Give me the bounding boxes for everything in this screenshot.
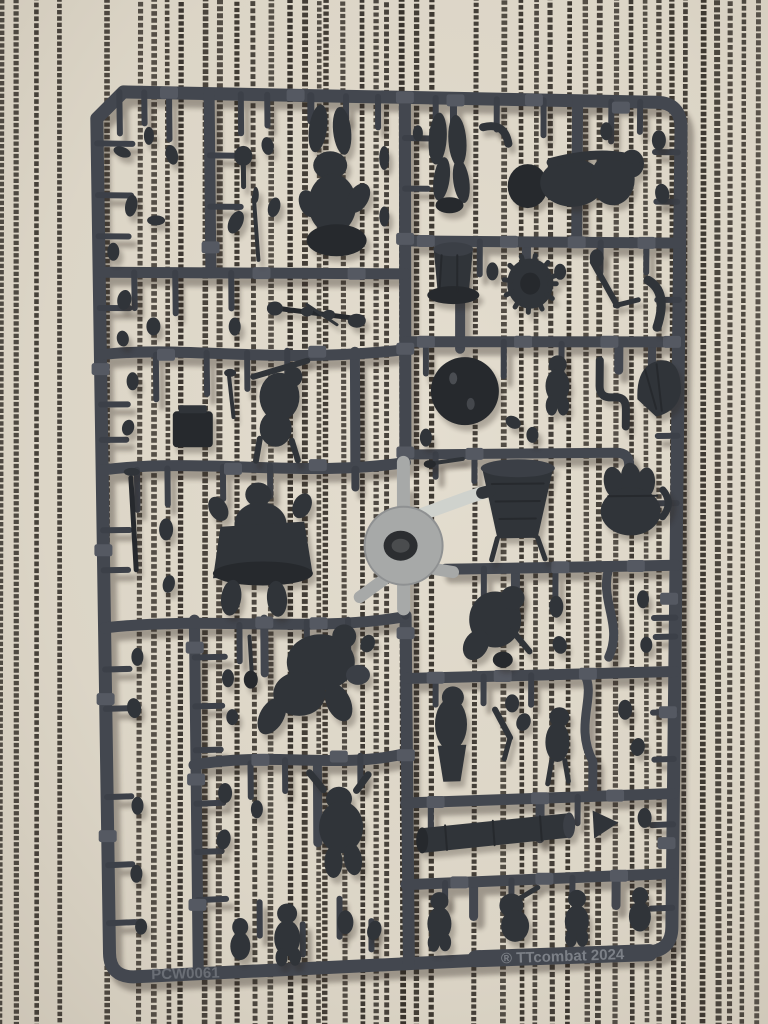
svg-text:PCW0061: PCW0061 — [151, 965, 220, 984]
